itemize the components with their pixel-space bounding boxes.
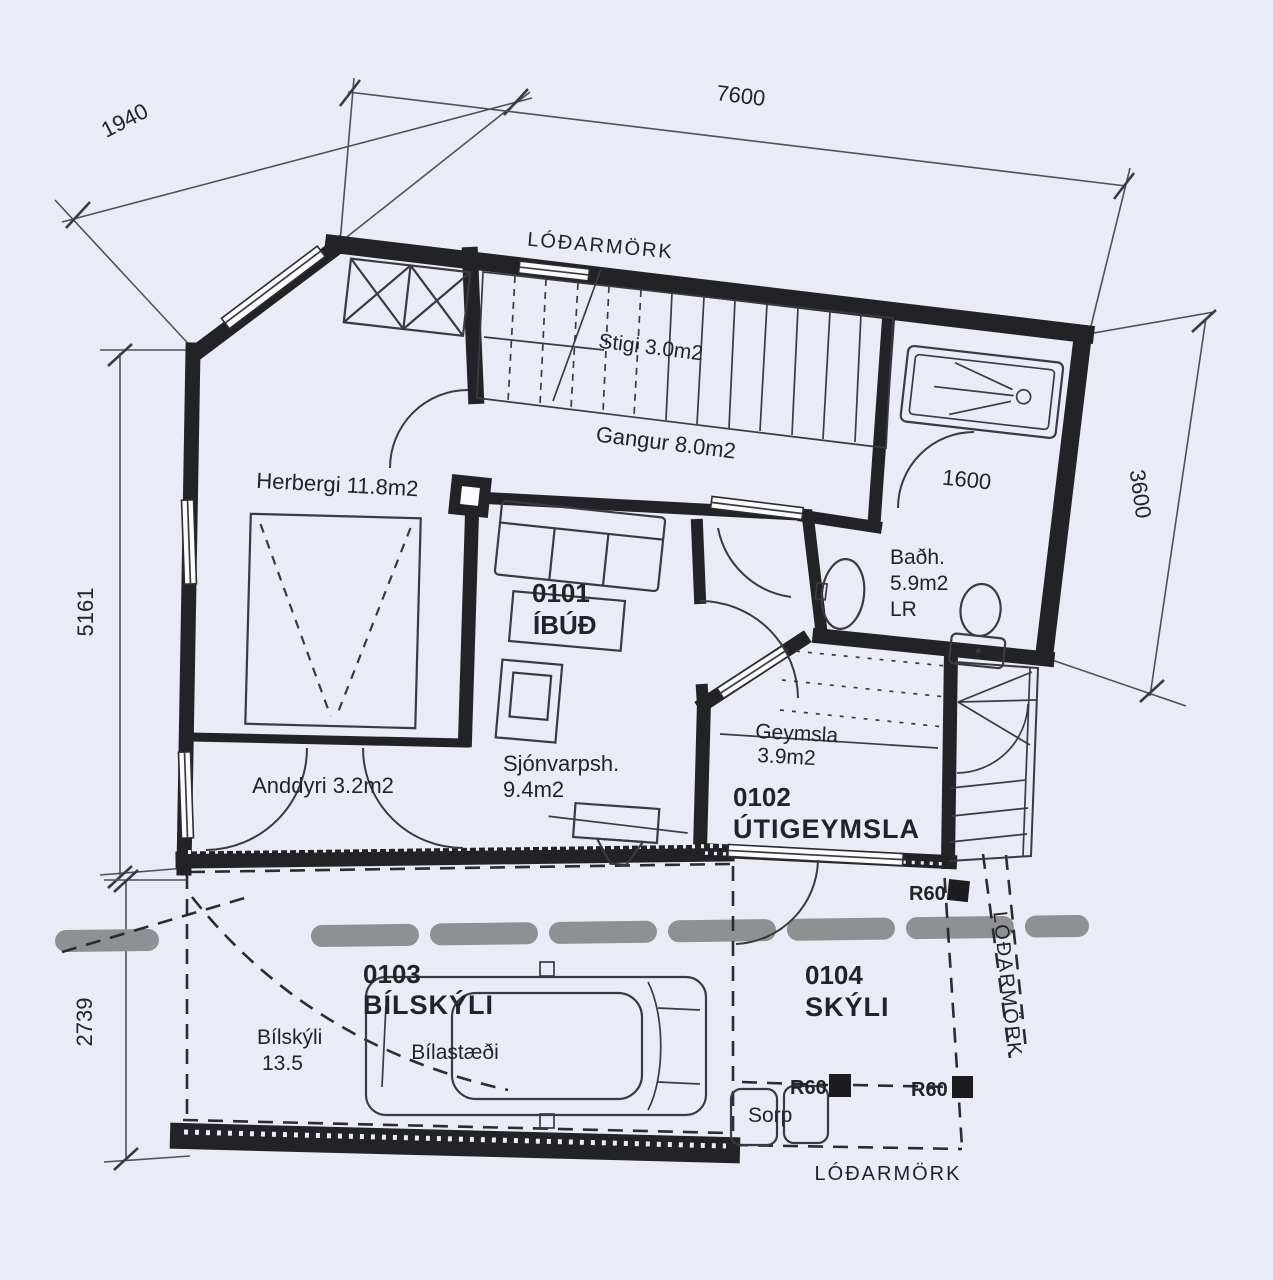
chamfer-window xyxy=(221,246,325,329)
carport-area-2: 13.5 xyxy=(262,1052,303,1075)
living-east-wall-upper xyxy=(697,525,700,598)
living-east-wall-lower xyxy=(702,690,703,706)
room-label-bedroom: Herbergi 11.8m2 xyxy=(256,468,419,501)
storage-east-wall xyxy=(948,650,951,862)
structural-column xyxy=(448,474,492,518)
room-number-apartment: 0101 xyxy=(532,578,590,608)
boundary-label-top: LÓÐARMÖRK xyxy=(526,228,674,264)
room-label-bathroom-3: LR xyxy=(890,598,917,621)
room-label-bathroom-1: Baðh. xyxy=(890,546,945,569)
parking-label: Bílastæði xyxy=(411,1041,499,1064)
labels: 1940 7600 5161 2739 3600 1600 LÓÐARMÖRK … xyxy=(72,80,1156,1185)
room-name-apartment: ÍBÚÐ xyxy=(533,610,597,640)
dimension-right: 3600 xyxy=(1125,468,1157,520)
bedroom-door-swing xyxy=(390,390,468,468)
boundary-label-right: LÓÐARMÖRK xyxy=(988,910,1026,1059)
storage-door xyxy=(717,646,789,699)
room-number-carport: 0103 xyxy=(363,959,421,989)
fire-rating-label-bottom-left: R60 xyxy=(790,1077,827,1099)
bedroom-entrance-wall xyxy=(190,737,465,743)
boundary-label-bottom: LÓÐARMÖRK xyxy=(815,1162,962,1185)
floor-plan-drawing: 1940 7600 5161 2739 3600 1600 LÓÐARMÖRK … xyxy=(0,0,1273,1280)
right-wall xyxy=(1044,334,1083,657)
bed-symbol xyxy=(245,514,420,728)
dimension-left-lower: 2739 xyxy=(72,998,97,1047)
walls xyxy=(183,244,1085,1150)
dimension-top: 7600 xyxy=(715,80,767,111)
fire-rating-label-bottom-right: R60 xyxy=(911,1079,948,1101)
dimension-chamfer: 1940 xyxy=(97,98,152,142)
room-label-bathroom-2: 5.9m2 xyxy=(890,572,948,595)
waste-label: Sorp xyxy=(748,1104,792,1127)
carport-south-wall xyxy=(183,1136,727,1150)
wardrobe-symbol xyxy=(344,259,470,336)
room-number-shelter: 0104 xyxy=(805,960,863,990)
room-label-tv-1: Sjónvarpsh. xyxy=(503,751,619,776)
room-name-outdoor-storage: ÚTIGEYMSLA xyxy=(733,813,920,844)
room-name-shelter: SKÝLI xyxy=(805,991,890,1022)
bath-west-wall xyxy=(874,312,889,524)
room-label-stairs: Stigi 3.0m2 xyxy=(597,330,704,366)
room-label-tv-2: 9.4m2 xyxy=(503,777,564,802)
room-label-storage-1: Geymsla xyxy=(755,720,839,747)
bath-south-wall xyxy=(820,636,1047,659)
top-wall xyxy=(334,244,1085,334)
left-window-2 xyxy=(179,752,194,838)
back-door-swing xyxy=(718,528,791,597)
fire-rating-label-top: R60 xyxy=(909,883,946,905)
road-band xyxy=(66,926,1078,941)
left-window-1 xyxy=(182,500,197,584)
bottom-main-wall xyxy=(184,853,726,860)
room-label-storage-2: 3.9m2 xyxy=(757,744,816,770)
storage-west-wall xyxy=(700,702,704,850)
bedroom-living-wall xyxy=(465,514,472,740)
stair-left-wall xyxy=(470,255,476,396)
room-label-entrance: Anddyri 3.2m2 xyxy=(252,773,394,798)
room-name-carport: BÍLSKÝLI xyxy=(363,989,494,1020)
floor-plan-page: 1940 7600 5161 2739 3600 1600 LÓÐARMÖRK … xyxy=(0,0,1273,1280)
bath-lower-west-wall xyxy=(808,518,822,636)
bathtub-symbol xyxy=(900,345,1064,438)
room-number-outdoor-storage: 0102 xyxy=(733,782,791,812)
entrance-door-swing-left xyxy=(206,748,307,850)
dimension-bath-door: 1600 xyxy=(941,465,992,495)
entrance-door-swing-right xyxy=(363,748,463,848)
armchair-symbol xyxy=(496,660,563,743)
dimension-left-upper: 5161 xyxy=(73,588,98,637)
carport-area-1: Bílskýli xyxy=(257,1026,322,1049)
